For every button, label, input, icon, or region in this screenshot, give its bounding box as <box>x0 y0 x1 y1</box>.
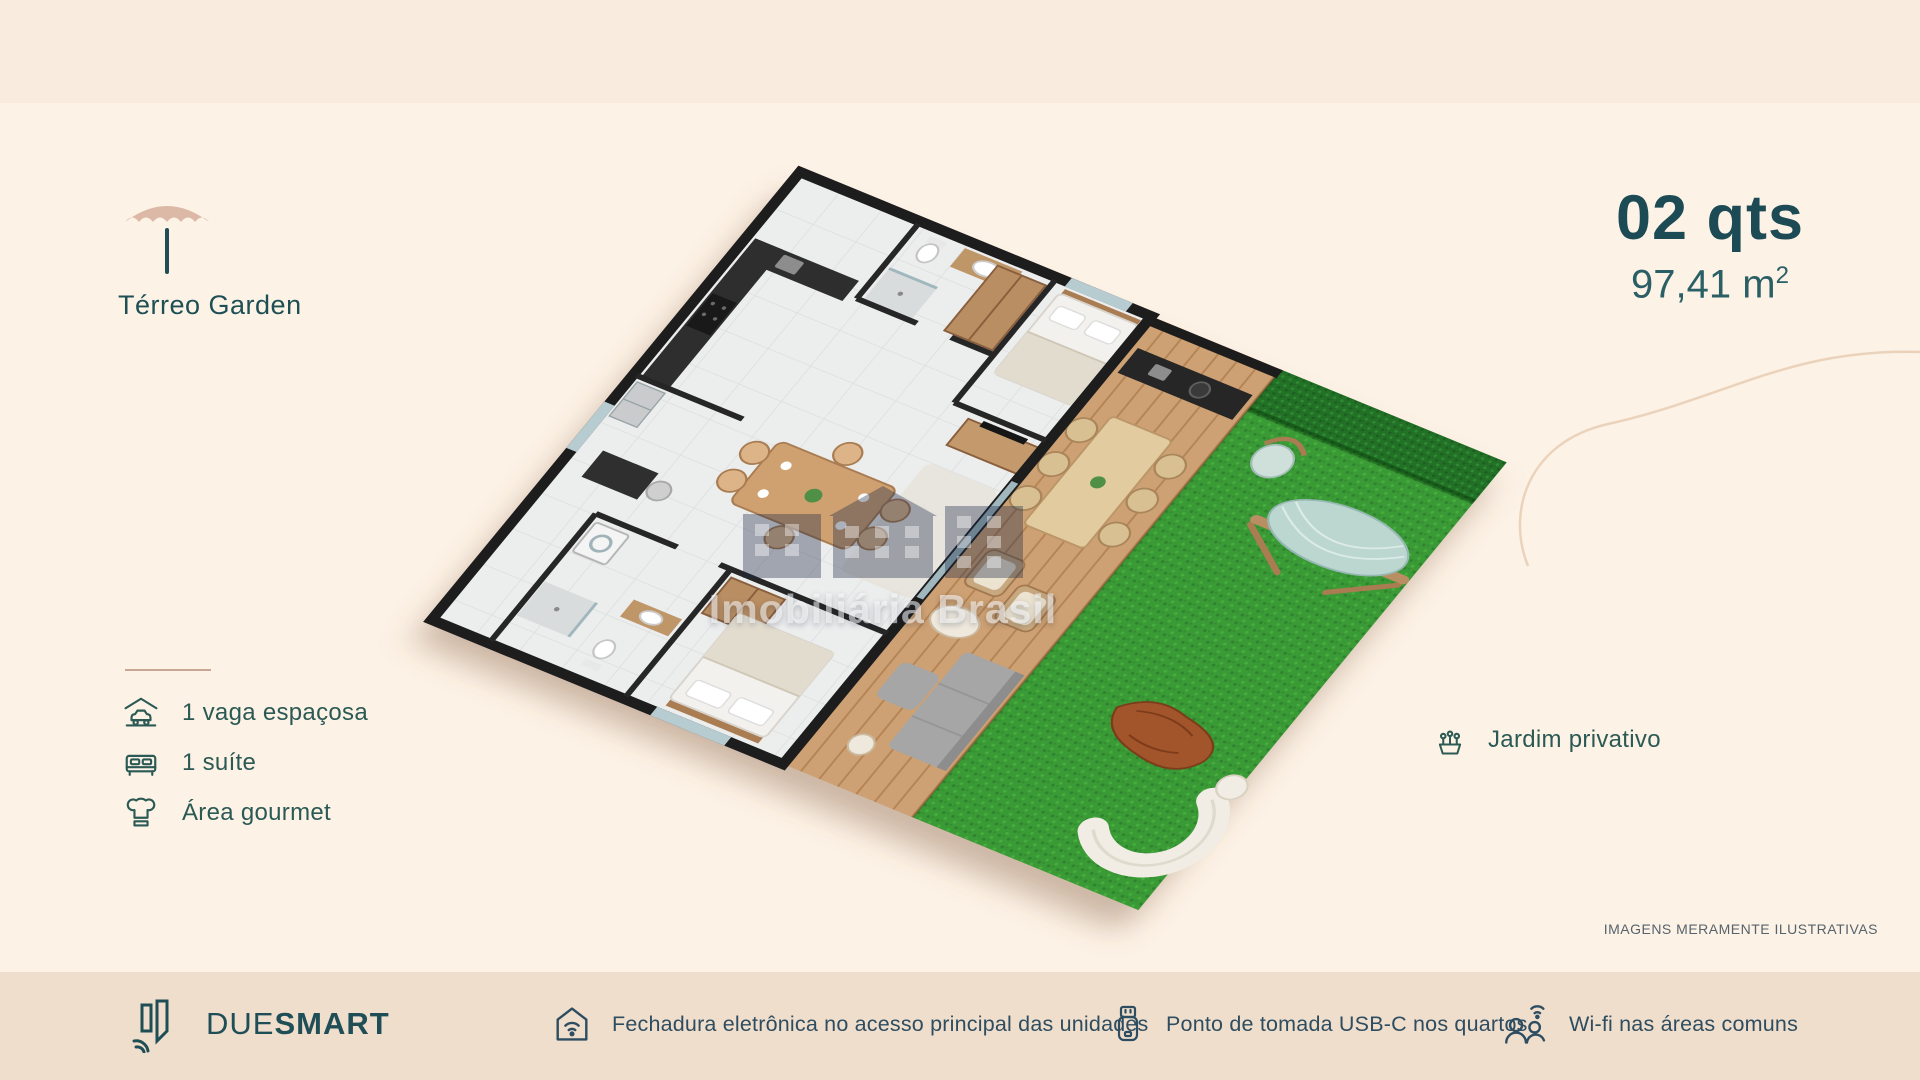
footer-feature-wifi: Wi-fi nas áreas comuns <box>1503 995 1798 1053</box>
floorplan-3d-render <box>0 0 1920 1080</box>
feature-item-suite: 1 suíte <box>122 744 368 782</box>
unit-specs: 02 qts 97,41 m2 <box>1565 182 1855 307</box>
unit-area: 97,41 m2 <box>1565 262 1855 307</box>
footer-feature-label: Fechadura eletrônica no acesso principal… <box>612 1012 1149 1037</box>
feature-label: Área gourmet <box>182 799 331 827</box>
disclaimer-text: IMAGENS MERAMENTE ILUSTRATIVAS <box>1604 921 1878 937</box>
garden-callout: Jardim privativo <box>1432 722 1661 758</box>
brand-name: DUESMART <box>206 1006 390 1042</box>
feature-list: 1 vaga espaçosa 1 suíte Área gourmet <box>122 694 368 844</box>
feature-label: 1 vaga espaçosa <box>182 699 368 727</box>
bed-icon <box>122 744 160 782</box>
usb-icon <box>1108 1002 1148 1046</box>
planter-icon <box>1432 722 1468 758</box>
garden-callout-label: Jardim privativo <box>1488 726 1661 754</box>
features-divider <box>125 669 211 671</box>
feature-item-gourmet: Área gourmet <box>122 794 368 832</box>
decorative-wave-line <box>1520 352 1920 566</box>
feature-item-parking: 1 vaga espaçosa <box>122 694 368 732</box>
isometric-plan <box>432 172 1514 913</box>
wifi-people-icon <box>1503 1001 1551 1047</box>
bedroom-count: 02 qts <box>1565 182 1855 254</box>
marketing-slide: Térreo Garden 02 qts 97,41 m2 1 vaga esp… <box>0 0 1920 1080</box>
duesmart-logo-icon <box>130 995 180 1053</box>
feature-label: 1 suíte <box>182 749 256 777</box>
plan-title-block: Térreo Garden <box>118 192 418 321</box>
brand-logo: DUESMART <box>130 995 390 1053</box>
carport-icon <box>122 694 160 732</box>
smart-lock-icon <box>550 1002 594 1046</box>
umbrella-icon <box>122 192 212 278</box>
footer-feature-label: Wi-fi nas áreas comuns <box>1569 1012 1798 1037</box>
footer-feature-usb: Ponto de tomada USB-C nos quartos <box>1108 995 1528 1053</box>
chef-hat-icon <box>122 794 160 832</box>
footer-feature-label: Ponto de tomada USB-C nos quartos <box>1166 1012 1528 1037</box>
footer-feature-lock: Fechadura eletrônica no acesso principal… <box>550 995 1149 1053</box>
plan-name: Térreo Garden <box>118 290 418 321</box>
